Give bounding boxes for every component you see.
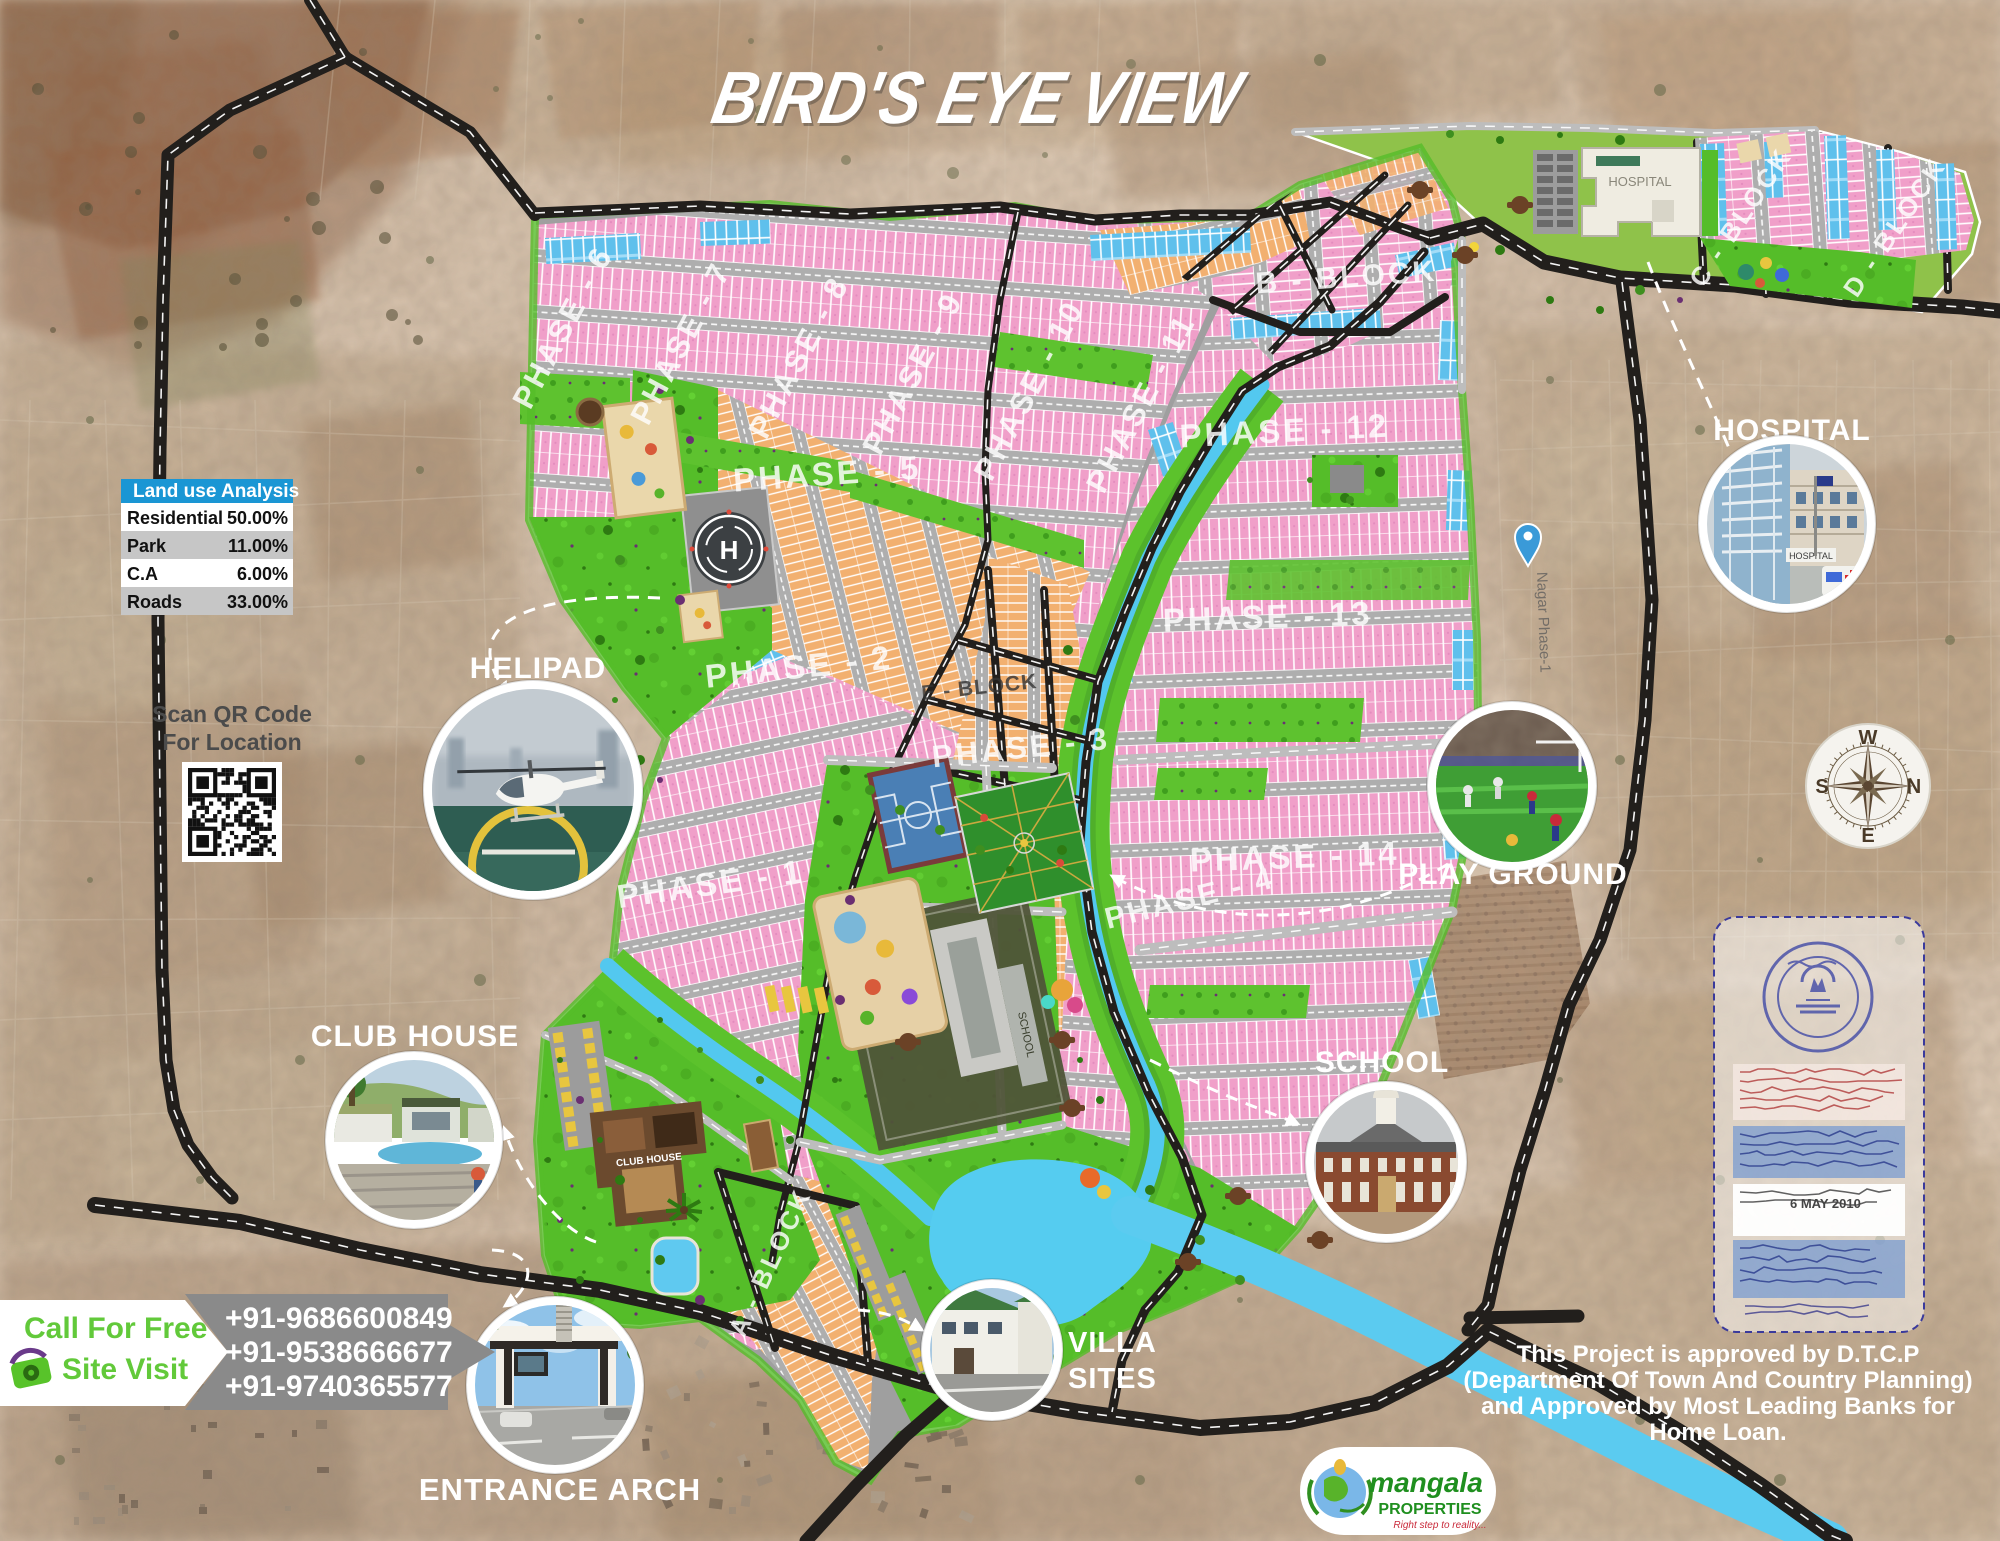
svg-text:Park: Park [127,536,167,556]
svg-text:For Location: For Location [162,729,301,755]
svg-text:Residential: Residential [127,508,223,528]
svg-text:Right step to reality...: Right step to reality... [1393,1520,1486,1531]
svg-text:Roads: Roads [127,592,182,612]
svg-text:PROPERTIES: PROPERTIES [1378,1501,1481,1518]
svg-text:Site Visit: Site Visit [62,1353,188,1386]
svg-text:C.A: C.A [127,564,158,584]
svg-text:11.00%: 11.00% [228,536,288,556]
svg-text:Scan QR Code: Scan QR Code [152,701,312,727]
svg-text:(Department Of Town And Countr: (Department Of Town And Country Planning… [1463,1367,1972,1394]
svg-text:This Project is approved by D.: This Project is approved by D.T.C.P [1517,1341,1920,1368]
svg-text:PHASE - 13: PHASE - 13 [1162,594,1373,638]
svg-text:BIRD'S EYE VIEW: BIRD'S EYE VIEW [706,56,1253,140]
svg-text:E: E [1861,825,1874,847]
svg-text:H: H [720,535,739,565]
svg-text:6 MAY 2010: 6 MAY 2010 [1790,1196,1861,1211]
svg-text:CLUB HOUSE: CLUB HOUSE [311,1020,519,1053]
svg-text:50.00%: 50.00% [227,508,288,528]
svg-text:VILLA: VILLA [1068,1327,1157,1359]
svg-text:mangala: mangala [1369,1467,1483,1498]
svg-text:and Approved by Most Leading B: and Approved by Most Leading Banks for [1481,1393,1955,1420]
svg-text:Nagar Phase-1: Nagar Phase-1 [1533,572,1554,673]
svg-text:HOSPITAL: HOSPITAL [1608,174,1671,189]
svg-text:HOSPITAL: HOSPITAL [1789,551,1833,561]
svg-text:ENTRANCE ARCH: ENTRANCE ARCH [419,1472,701,1507]
svg-text:S: S [1815,776,1828,798]
svg-text:+91-9686600849: +91-9686600849 [225,1302,453,1335]
svg-text:PLAY GROUND: PLAY GROUND [1398,858,1627,891]
svg-text:+91-9538666677: +91-9538666677 [225,1336,453,1369]
svg-text:SCHOOL: SCHOOL [1315,1046,1449,1079]
svg-text:PHASE - 14: PHASE - 14 [1189,834,1400,878]
svg-text:N: N [1907,776,1921,798]
svg-text:Land use Analysis: Land use Analysis [133,481,299,502]
svg-text:6.00%: 6.00% [237,564,288,584]
svg-text:Call For Free: Call For Free [24,1312,207,1345]
svg-text:33.00%: 33.00% [227,592,288,612]
svg-text:W: W [1859,727,1878,749]
svg-text:+91-9740365577: +91-9740365577 [225,1370,453,1403]
svg-text:SITES: SITES [1068,1363,1157,1395]
svg-text:Home Loan.: Home Loan. [1649,1419,1786,1446]
